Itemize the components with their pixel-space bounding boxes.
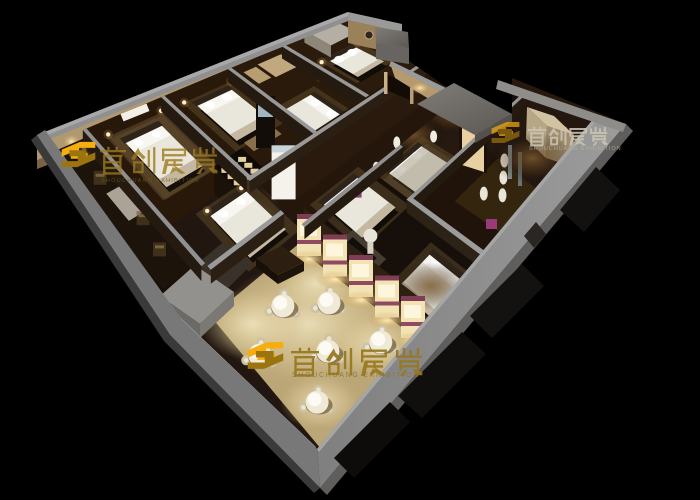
svg-text:SHOUCHUANG EXHIBITION: SHOUCHUANG EXHIBITION <box>101 178 200 184</box>
svg-text:SHOUCHUANG EXHIBITION: SHOUCHUANG EXHIBITION <box>292 372 420 379</box>
svg-text:SHOUCHUANG EXHIBITION: SHOUCHUANG EXHIBITION <box>529 146 622 152</box>
